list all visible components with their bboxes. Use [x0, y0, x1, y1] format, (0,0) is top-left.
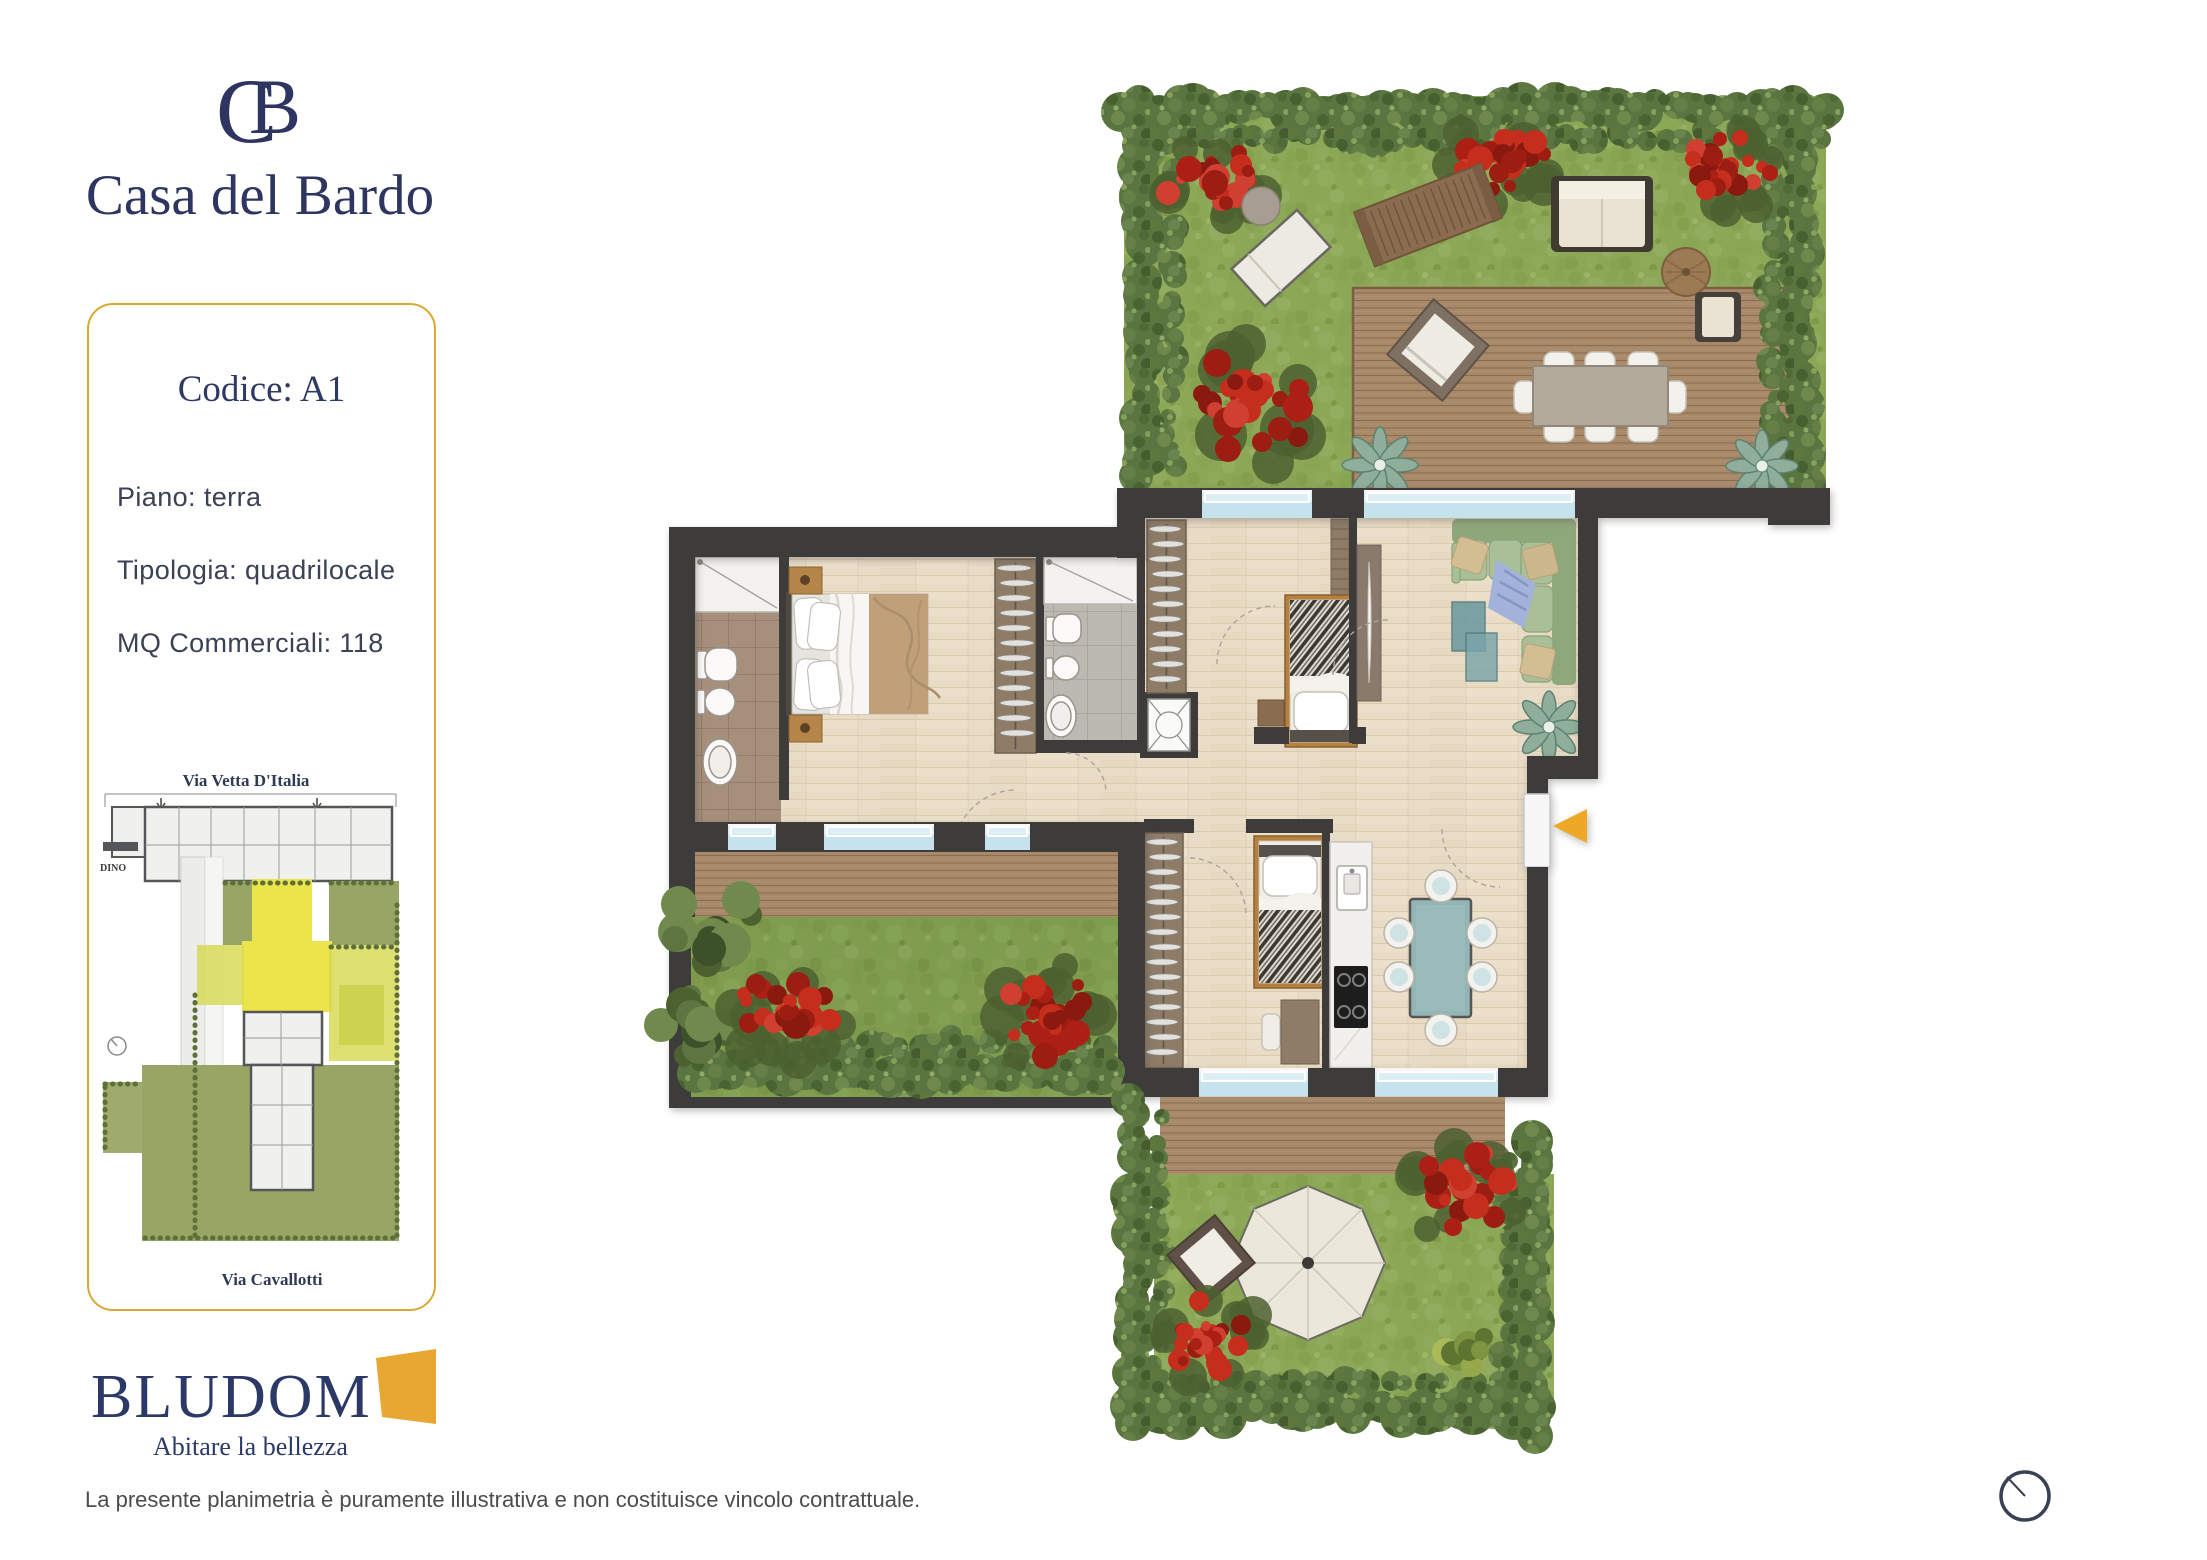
svg-text:Via Cavallotti: Via Cavallotti	[222, 1270, 323, 1289]
svg-text:DINO: DINO	[100, 863, 126, 874]
svg-text:Via Vetta D'Italia: Via Vetta D'Italia	[183, 771, 310, 790]
